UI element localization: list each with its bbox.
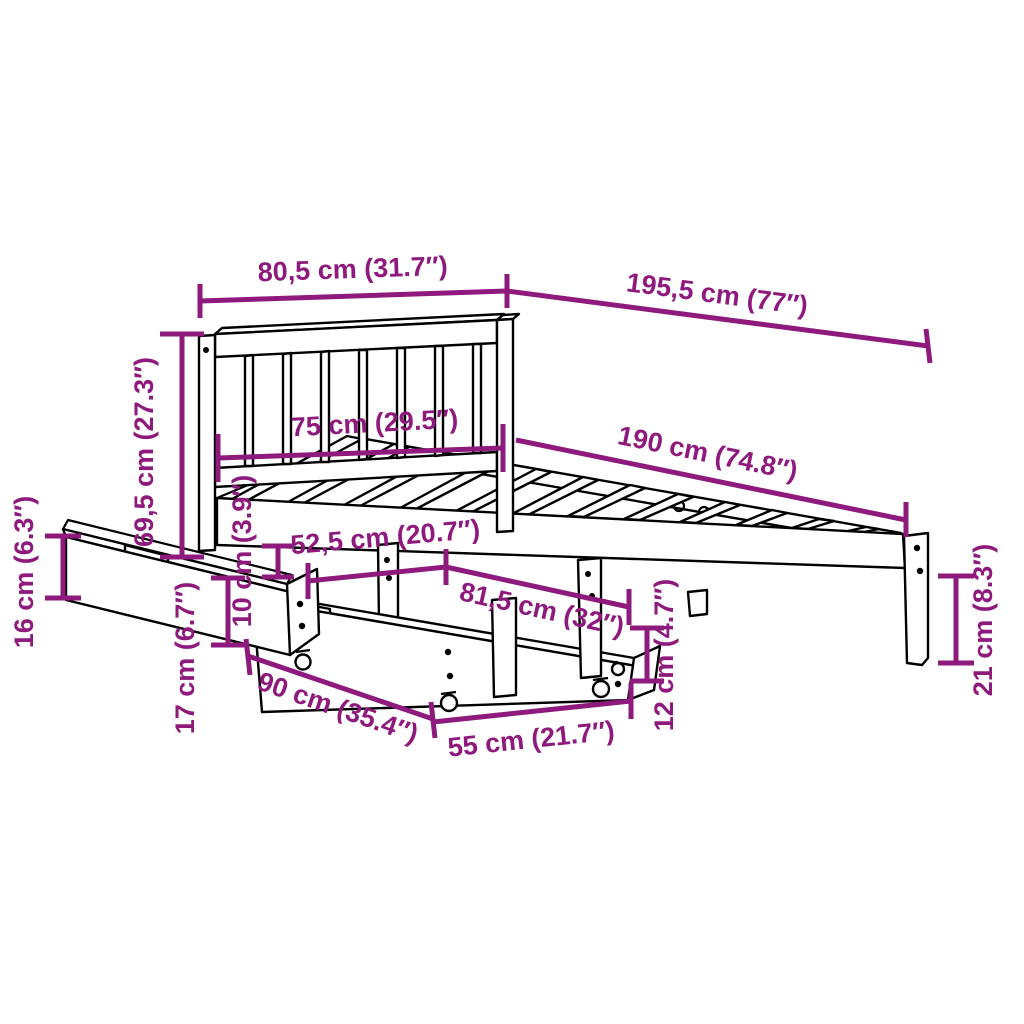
dim-headboard-inner-width-label: 75 cm (29.5″) [290, 404, 459, 443]
dim-drawer-side-height-label: 17 cm (6.7″) [170, 582, 200, 735]
headboard-left-post [199, 335, 215, 551]
caster-wheel [612, 663, 624, 675]
dim-headboard-height-label: 69,5 cm (27.3″) [129, 357, 159, 547]
dim-headboard-width-label: 80,5 cm (31.7″) [257, 251, 448, 288]
dim-caster-leg-height: 12 cm (4.7″) [630, 579, 679, 732]
dim-caster-leg-height-label: 12 cm (4.7″) [649, 579, 679, 732]
dim-foot-leg-height: 21 cm (8.3″) [938, 544, 998, 697]
bed-frame-diagram-svg: 80,5 cm (31.7″) 195,5 cm (77″) 75 cm (29… [0, 0, 1024, 1024]
dim-slat-length-label: 190 cm (74.8″) [615, 420, 800, 486]
dim-total-length-label: 195,5 cm (77″) [625, 267, 810, 321]
headboard-right-post [497, 314, 519, 532]
dimension-diagram: 80,5 cm (31.7″) 195,5 cm (77″) 75 cm (29… [0, 0, 1024, 1024]
dim-drawer-front-width-label: 55 cm (21.7″) [446, 715, 616, 762]
dim-headboard-height: 69,5 cm (27.3″) [129, 334, 204, 557]
dim-total-length: 195,5 cm (77″) [507, 267, 930, 363]
dim-headboard-width: 80,5 cm (31.7″) [200, 251, 507, 318]
dim-foot-leg-height-label: 21 cm (8.3″) [968, 544, 998, 697]
far-center-leg [688, 590, 707, 616]
dim-drawer-front-height-label: 16 cm (6.3″) [9, 496, 39, 649]
dim-under-bed-clearance-label: 10 cm (3.9″) [227, 475, 257, 628]
foot-leg [904, 533, 928, 665]
